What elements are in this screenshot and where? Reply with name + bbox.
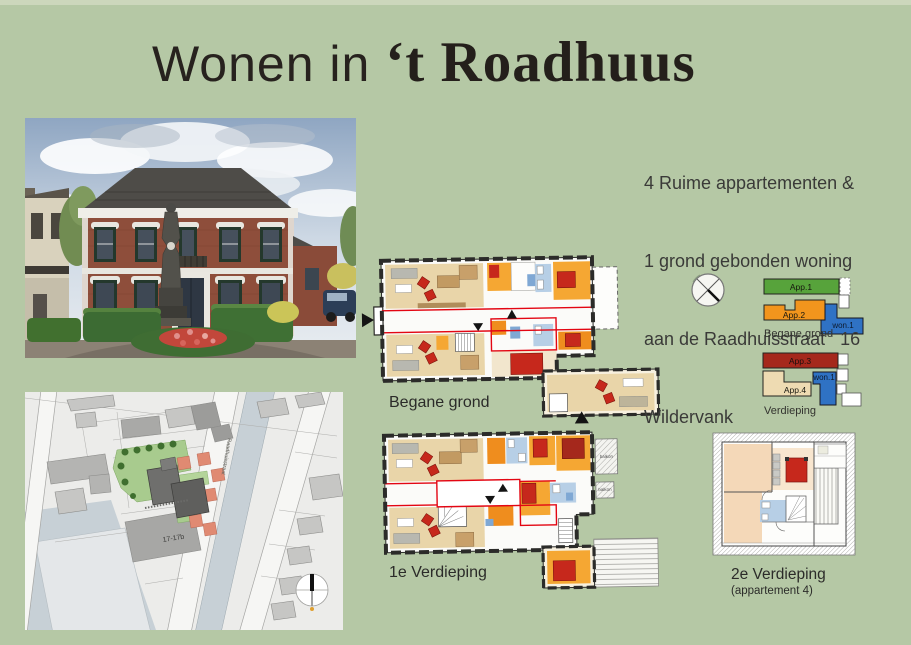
annex-1e (543, 538, 659, 588)
balconies: balkon balkon (595, 439, 618, 498)
kitchenette (491, 321, 506, 335)
intro-text: 4 Ruime appartementen & 1 grond gebonden… (644, 118, 860, 482)
title-prefix: Wonen in (152, 35, 370, 93)
second-plan-sublabel: (appartement 4) (731, 585, 813, 597)
staircase (455, 333, 474, 351)
intro-line-1: 4 Ruime appartementen & (644, 170, 860, 196)
garden-room-annex (543, 369, 659, 416)
intro-line-2: 1 grond gebonden woning (644, 248, 860, 274)
page-title: Wonen in ‘t Roadhuus (152, 30, 696, 95)
ground-plan-label: Begane grond (389, 394, 490, 412)
building-photo (25, 118, 356, 358)
brochure-page: Wonen in ‘t Roadhuus 4 Ruime appartement… (0, 0, 911, 645)
spiral-stair (786, 496, 806, 522)
page-top-edge (0, 0, 911, 5)
intro-line-4: Wildervank (644, 404, 860, 430)
entrance-arrow-west (362, 313, 374, 327)
svg-text:balkon: balkon (598, 487, 612, 492)
second-plan-label: 2e Verdieping (731, 566, 826, 584)
first-floor-plan: balkon balkon (360, 424, 665, 624)
flower-bed (131, 327, 255, 357)
title-name: ‘t Roadhuus (385, 30, 695, 95)
first-plan-label: 1e Verdieping (389, 564, 487, 582)
site-map: 17-17b Raadhuisstraat (25, 392, 343, 630)
staircase-1e (438, 506, 466, 526)
terrace-outline (592, 267, 618, 329)
unit-diagram-ground-caption: Begane grond (764, 328, 833, 340)
unit-diagram-upper-caption: Verdieping (764, 405, 816, 417)
svg-text:balkon: balkon (600, 454, 614, 459)
stairwell-right (558, 519, 572, 543)
attic-room-b (724, 492, 762, 543)
